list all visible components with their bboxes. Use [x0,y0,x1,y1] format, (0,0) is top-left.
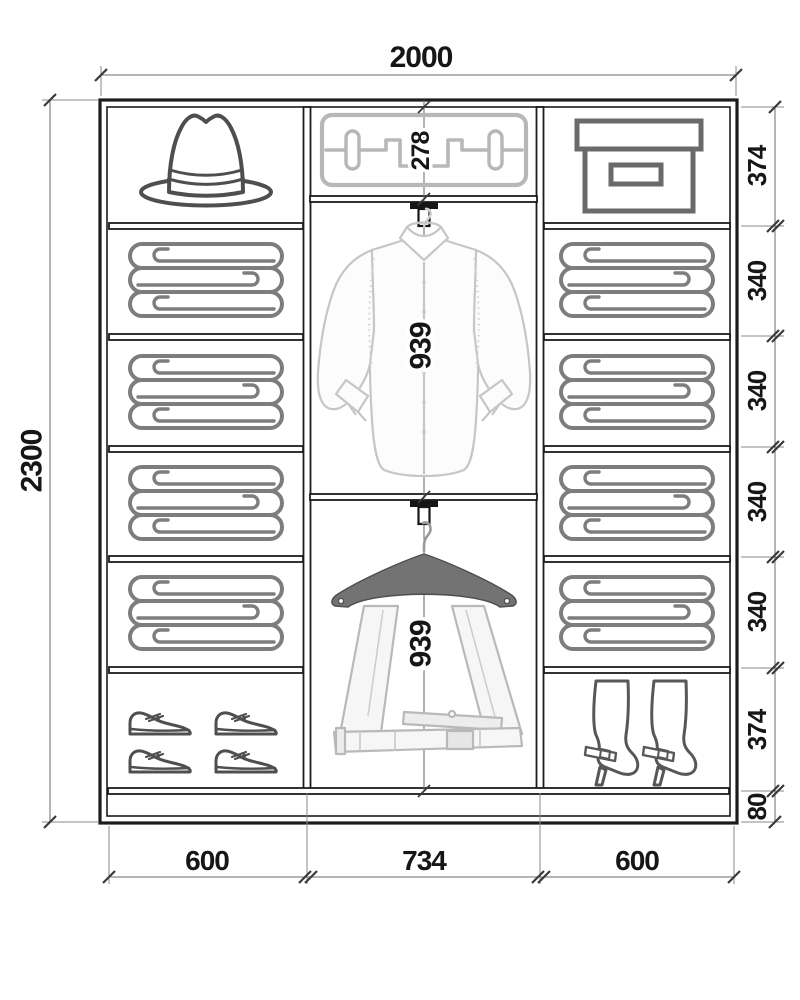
dimension-label-right-column-width: 600 [615,845,659,876]
folded-blanket-icon [561,467,713,539]
partition-left [304,107,311,790]
partition-right [537,107,544,790]
folded-blanket-icon [130,467,282,539]
shelf [544,446,730,452]
shelf [109,667,303,673]
dimension-label-middle-column-width: 734 [402,845,447,876]
folded-blanket-icon [561,244,713,316]
dimension-label-overall-width: 2000 [390,41,453,74]
wardrobe-dimension-diagram: 2000 2300 374 340 340 340 340 374 80 600… [0,0,800,1000]
folded-blanket-icon [130,577,282,649]
folded-blanket-icon [130,244,282,316]
plinth-shelf [108,788,729,794]
diagram-svg: 2000 2300 374 340 340 340 340 374 80 600… [0,0,800,1000]
dimension-label-section-5: 340 [742,591,772,632]
folded-blanket-icon [561,577,713,649]
shelf [544,334,730,340]
dimension-label-plinth: 80 [742,793,772,820]
dimension-label-rack-height: 278 [407,131,435,171]
dimension-label-overall-height: 2300 [16,429,49,492]
dimension-label-section-3: 340 [742,370,772,411]
shelf [109,334,303,340]
dimension-label-section-6: 374 [742,708,772,750]
shelf [544,556,730,562]
shelf [109,446,303,452]
dimension-label-section-1: 374 [742,144,772,186]
dimension-label-trouser-section: 939 [405,620,438,667]
storage-box-icon [577,121,701,211]
shelf [109,556,303,562]
shelf [109,223,303,229]
dimension-label-left-column-width: 600 [185,845,229,876]
dimension-label-section-4: 340 [742,481,772,522]
folded-blanket-icon [561,356,713,428]
shelf [544,667,730,673]
dimension-label-section-2: 340 [742,260,772,301]
dimension-label-shirt-section: 939 [405,322,438,369]
folded-blanket-icon [130,356,282,428]
shelf [544,223,730,229]
